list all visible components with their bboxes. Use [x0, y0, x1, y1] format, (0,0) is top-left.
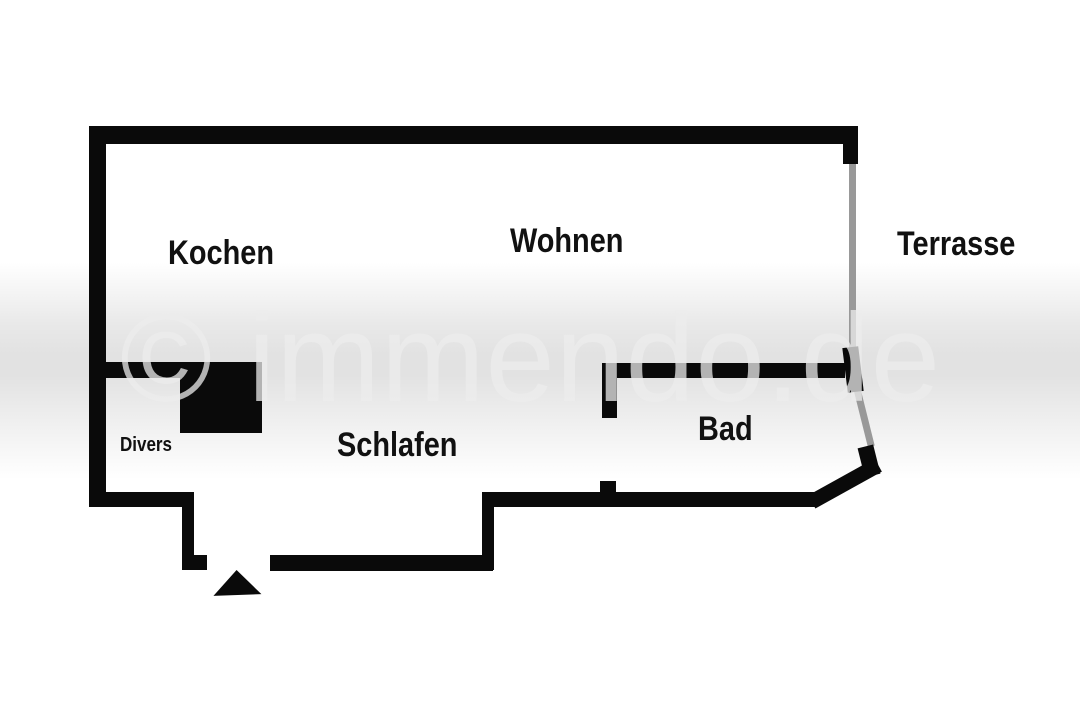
room-label-bad: Bad — [698, 412, 753, 446]
floorplan-canvas: © immendo.de Kochen Wohnen Terrasse Schl… — [0, 0, 1080, 720]
wall-entry-foot — [182, 555, 207, 570]
room-label-terrasse: Terrasse — [897, 227, 1015, 261]
watermark: © immendo.de — [120, 296, 941, 421]
room-label-schlafen: Schlafen — [337, 428, 457, 462]
room-label-kochen: Kochen — [168, 236, 274, 270]
entrance-arrow-icon — [213, 569, 262, 596]
room-label-divers: Divers — [120, 435, 172, 455]
wall-bottom-left — [89, 492, 194, 507]
wall-schlafen-bottom — [270, 555, 493, 571]
wall-top-right-corner — [843, 144, 858, 164]
wall-outer-top — [89, 126, 858, 144]
wall-outer-left — [89, 126, 106, 507]
room-label-wohnen: Wohnen — [510, 224, 623, 258]
wall-bottom-right — [482, 492, 818, 507]
